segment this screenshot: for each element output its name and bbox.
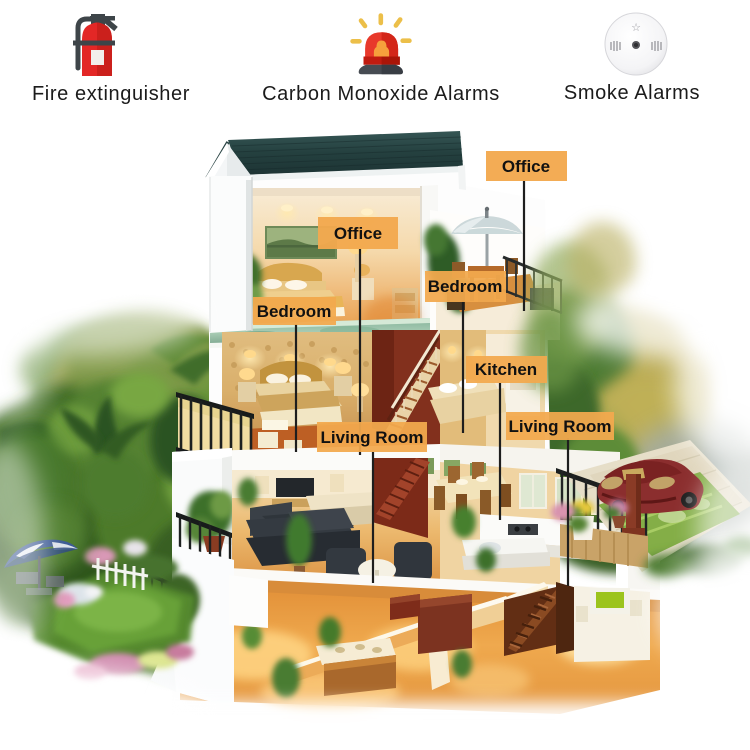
- svg-text:☆: ☆: [631, 22, 641, 34]
- svg-text:Office: Office: [502, 157, 550, 176]
- svg-text:Kitchen: Kitchen: [475, 360, 537, 379]
- svg-text:Office: Office: [334, 224, 382, 243]
- svg-text:Bedroom: Bedroom: [257, 302, 332, 321]
- svg-text:Bedroom: Bedroom: [428, 277, 503, 296]
- svg-text:Carbon Monoxide Alarms: Carbon Monoxide Alarms: [262, 83, 500, 105]
- svg-text:Smoke Alarms: Smoke Alarms: [564, 82, 700, 104]
- svg-text:Living Room: Living Room: [509, 417, 612, 436]
- svg-text:Fire extinguisher: Fire extinguisher: [32, 83, 190, 105]
- svg-text:Living Room: Living Room: [321, 428, 424, 447]
